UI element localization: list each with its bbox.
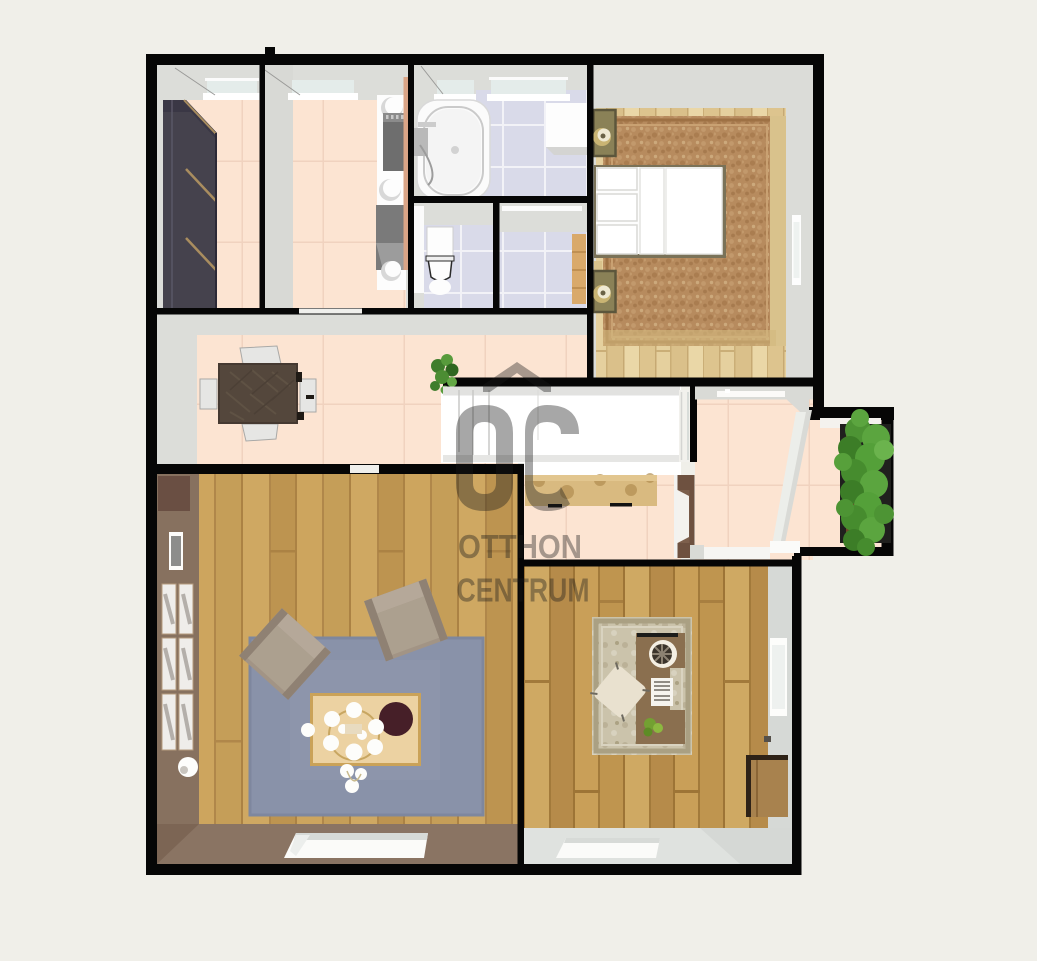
svg-text:CENTRUM: CENTRUM	[457, 573, 590, 610]
svg-text:OTTHON: OTTHON	[458, 529, 582, 566]
